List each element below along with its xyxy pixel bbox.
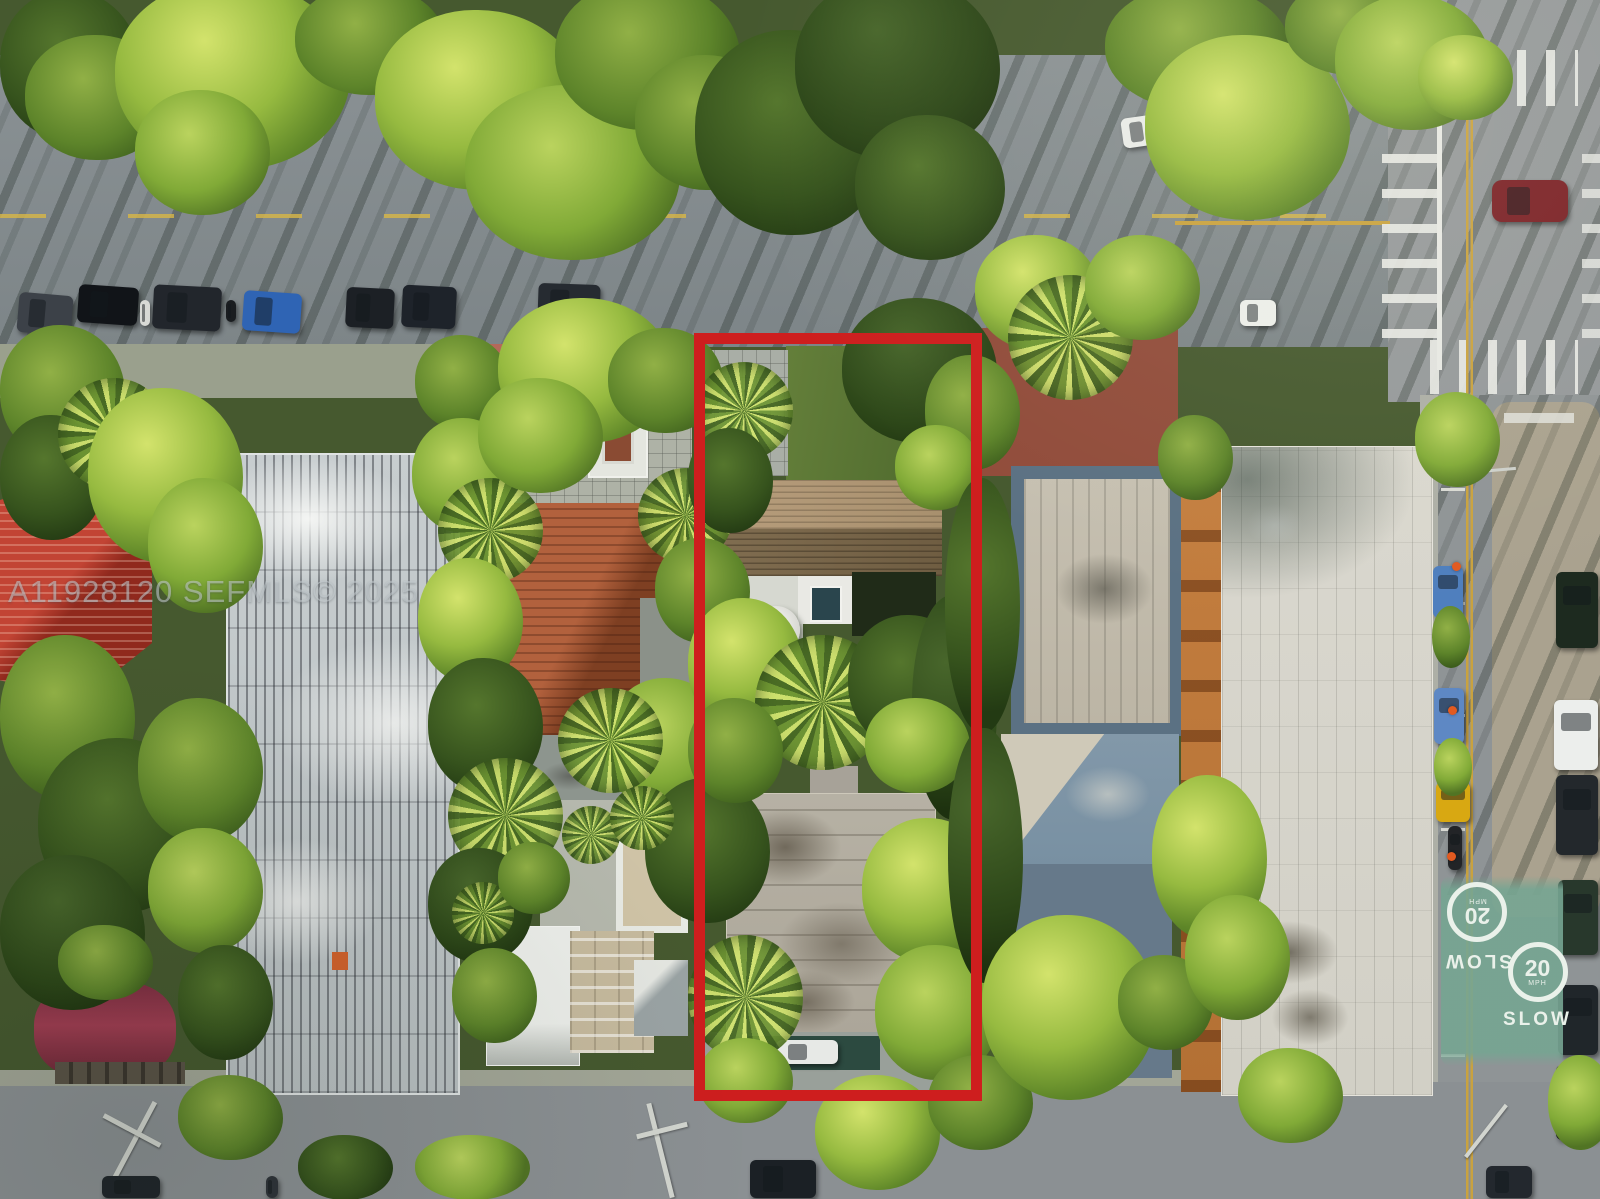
- tree-canopy: [135, 90, 270, 215]
- tree-canopy: [1238, 1048, 1343, 1143]
- parked-car: [102, 1176, 160, 1198]
- slow-word: SLOW: [1503, 1009, 1572, 1031]
- parked-motorcycle: [140, 300, 150, 326]
- parked-motorcycle: [1448, 826, 1462, 870]
- parked-car: [77, 284, 140, 326]
- planter-shrub: [1434, 738, 1472, 796]
- tree-canopy: [58, 925, 153, 1000]
- crosswalk-edge-line: [1437, 118, 1442, 370]
- tree-canopy: [1415, 392, 1500, 487]
- tree-canopy: [178, 945, 273, 1060]
- traffic-cone: [1452, 562, 1461, 571]
- parked-car-white: [1240, 300, 1276, 326]
- tree-canopy: [855, 115, 1005, 260]
- parked-scooter: [266, 1176, 278, 1198]
- tree-canopy: [1085, 235, 1200, 340]
- palm-tree: [610, 786, 674, 850]
- parked-pickup: [345, 287, 395, 329]
- parked-car-blue: [242, 290, 303, 334]
- tree-canopy: [1418, 35, 1513, 120]
- traffic-cone: [1447, 852, 1456, 861]
- tree-canopy: [1158, 415, 1233, 500]
- parked-suv: [1556, 572, 1598, 648]
- crosswalk-west: [1382, 134, 1438, 338]
- slow-zone-paint: SLOW 20 MPH 20 MPH SLOW: [1441, 876, 1563, 1066]
- parked-motorcycle: [226, 300, 236, 322]
- parked-van: [152, 284, 222, 331]
- speed-circle: 20 MPH: [1508, 942, 1568, 1002]
- property-highlight-outline: [694, 333, 982, 1101]
- wood-planks: [55, 1062, 185, 1084]
- traffic-cone: [1448, 706, 1457, 715]
- palm-tree: [558, 688, 663, 793]
- parked-car: [1486, 1166, 1532, 1198]
- tree-canopy: [1185, 895, 1290, 1020]
- tree-canopy: [148, 828, 263, 953]
- slow-marking-northbound: SLOW 20 MPH: [1443, 882, 1512, 971]
- tree-canopy: [138, 698, 263, 843]
- mls-watermark: A11928120 SEFMLS© 2025: [8, 574, 419, 610]
- driving-car-red: [1492, 180, 1568, 222]
- tree-canopy: [178, 1075, 283, 1160]
- tree-canopy: [452, 948, 537, 1043]
- crosswalk-east: [1582, 134, 1600, 338]
- center-line-solid: [1175, 221, 1390, 225]
- aerial-photo: SLOW 20 MPH 20 MPH SLOW: [0, 0, 1600, 1199]
- rooftop-orange-unit: [332, 952, 348, 970]
- stop-line: [1504, 413, 1574, 423]
- parked-pickup: [401, 285, 457, 330]
- parked-car-white: [1554, 700, 1598, 770]
- slow-word: SLOW: [1443, 949, 1512, 971]
- gray-corner-roof: [634, 960, 688, 1036]
- speed-circle: 20 MPH: [1448, 882, 1508, 942]
- crosswalk-south: [1430, 340, 1578, 394]
- tree-canopy: [415, 1135, 530, 1199]
- parking-tick: [1441, 488, 1465, 491]
- neighbor-flat-roof: [1011, 466, 1183, 736]
- parked-car-blue: [1434, 688, 1464, 744]
- parked-car: [1556, 775, 1598, 855]
- tree-canopy: [498, 842, 570, 914]
- tree-canopy: [298, 1135, 393, 1199]
- slow-marking-southbound: 20 MPH SLOW: [1503, 942, 1572, 1031]
- planter-shrub: [1432, 606, 1470, 668]
- tree-canopy: [478, 378, 603, 493]
- parked-car: [750, 1160, 816, 1198]
